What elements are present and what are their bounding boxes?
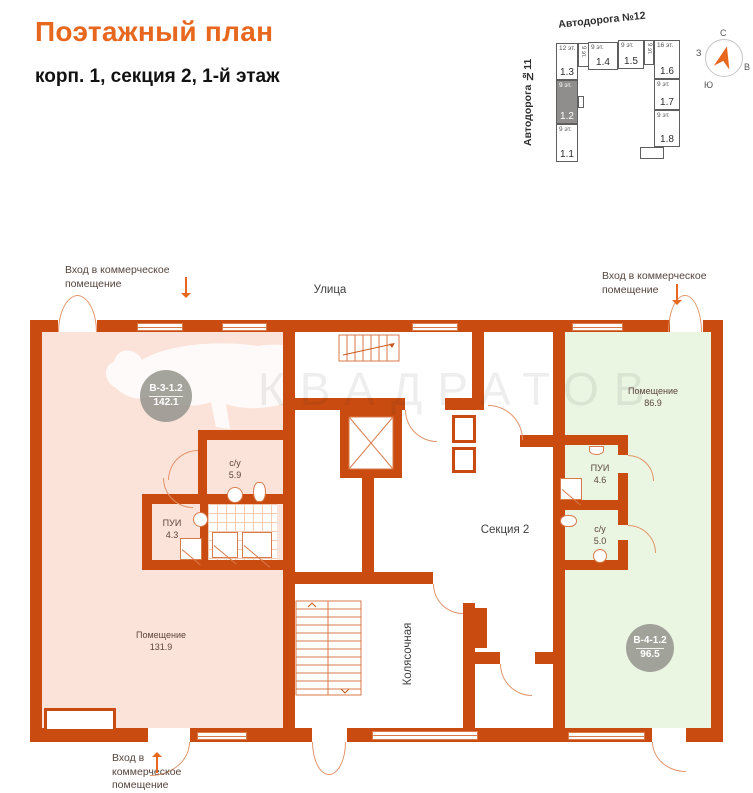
building-floors: 9 эт. [657,81,670,88]
building-floors: 9 эт. [621,42,634,49]
room-area: 131.9 [91,641,231,653]
building-floors: 9 эт. [591,44,604,51]
wall [553,560,628,570]
door-opening [312,728,347,742]
door-arc [652,742,686,772]
room-label-right-pui: ПУИ 4.6 [570,462,630,486]
compass-east-label: В [744,62,750,72]
minimap-building-1-6[interactable]: 16 эт. 1.6 [654,40,680,79]
building-floors: 9 эт. [657,112,670,119]
door-opening [652,728,686,742]
window [572,323,623,331]
wall [553,435,628,445]
entrance-label-top-left: Вход в коммерческое помещение [65,264,190,291]
compass: С З В Ю [696,26,752,98]
room-area: 86.9 [583,397,723,409]
room-name: ПУИ [142,517,202,529]
street-label: Улица [300,284,360,296]
utility-sink-icon [212,532,238,558]
entrance-arrow-icon [672,284,682,310]
wall [367,572,433,584]
toilet-icon [253,482,266,502]
building-floors: 9 эт. [580,46,586,58]
door-opening [148,728,190,742]
door-arc [312,742,329,775]
elevator-icon [348,416,394,470]
building-id: 1.4 [589,57,617,68]
wall [535,652,553,664]
room-label-right-commercial: Помещение 86.9 [583,385,723,409]
building-id: 1.7 [655,97,679,108]
building-floors: 16 эт. [657,42,673,49]
minimap-building-1-3[interactable]: 12 эт. 1.3 [556,43,578,80]
arrow-head [181,293,191,303]
room-name: ПУИ [570,462,630,474]
wall [283,332,295,728]
wall [475,608,487,648]
room-area: 5.0 [570,535,630,547]
room-label-left-pui: ПУИ 4.3 [142,517,202,541]
unit-code: В-3-1.2 [149,383,182,396]
wall [553,500,628,510]
minimap-building-1-5[interactable]: 9 эт. 1.5 [618,40,644,69]
wall [711,320,723,742]
wall [553,332,565,728]
unit-code: В-4-1.2 [633,635,666,648]
building-id: 1.8 [655,134,679,145]
main-staircase-icon [295,600,362,696]
window [222,323,267,331]
compass-west-label: З [696,48,701,58]
minimap-building-annex-top[interactable]: 9 эт. [578,43,589,67]
door-arc [433,584,463,614]
unit-area: 96.5 [636,648,663,662]
window [137,323,183,331]
minimap-building-1-8[interactable]: 9 эт. 1.8 [654,110,680,147]
window [568,732,645,740]
wall [293,572,367,584]
building-floors: 12 эт. [559,45,575,52]
road-label-12: Автодорога №12 [558,5,689,31]
compass-north-label: С [720,28,727,38]
room-area: 4.3 [142,529,202,541]
section-label: Секция 2 [460,524,550,536]
room-name: Помещение [91,629,231,641]
entrance-label-top-right: Вход в коммерческое помещение [602,270,727,297]
sink-icon [593,549,607,563]
entrance-arrow-icon [152,747,162,773]
entrance-arrow-icon [181,277,191,303]
door-arc [488,405,523,440]
sink-icon [589,446,604,455]
stroller-room-label: Колясочная [402,579,414,729]
unit-area: 142.1 [149,396,182,410]
entrance-stairs-icon [338,334,400,362]
compass-arrow-icon [709,43,739,73]
building-floors: 9 эт. [646,43,652,55]
minimap-structure [640,147,664,159]
room-label-left-commercial: Помещение 131.9 [91,629,231,653]
window [372,731,478,740]
door-arc [405,410,437,442]
arrow-stem [156,755,158,773]
door-arc [685,295,702,332]
door-arc [500,664,532,696]
wall [142,494,290,504]
room-name: Помещение [583,385,723,397]
building-id: 1.1 [557,149,577,160]
building-id: 1.5 [619,56,643,67]
utility-sink-icon [180,538,202,560]
unit-badge-right[interactable]: В-4-1.2 96.5 [626,624,674,672]
minimap-structure [578,96,584,108]
minimap-building-annex-mid[interactable]: 9 эт. [644,40,654,65]
polygon-shape [714,44,735,69]
room-name: с/у [570,523,630,535]
floor-plan-page: { "header": { "title": "Поэтажный план",… [0,0,753,781]
wall [475,652,500,664]
building-floors: 9 эт. [559,82,572,89]
window [197,732,247,740]
wall [198,430,283,440]
minimap-building-1-7[interactable]: 9 эт. 1.7 [654,79,680,110]
page-subtitle: корп. 1, секция 2, 1-й этаж [35,66,280,88]
building-id: 1.6 [655,66,679,77]
wall [520,435,553,447]
door-arc [77,295,97,332]
page-title: Поэтажный план [35,16,273,48]
site-minimap: Автодорога №12 Автодорога №11 9 эт. 1.1 … [520,8,720,166]
room-name: с/у [205,457,265,469]
path-shape [322,363,335,377]
wall [463,603,475,728]
wall [445,398,484,410]
door-arc [58,295,78,332]
wall [30,320,42,742]
minimap-building-1-2-highlighted[interactable]: 9 эт. 1.2 [556,80,578,124]
arrow-head [672,300,682,310]
room-area: 5.9 [205,469,265,481]
building-id: 1.3 [557,67,577,78]
utility-sink-icon [242,532,272,558]
wall [362,478,374,572]
rect-shape [339,335,399,361]
floor-plan: КВАДРАТОВ Помещение 131.9 Помещение 86.9… [30,318,723,781]
room-label-right-wc: с/у 5.0 [570,523,630,547]
minimap-building-1-1[interactable]: 9 эт. 1.1 [556,124,578,162]
unit-badge-left[interactable]: В-3-1.2 142.1 [140,370,192,422]
building-floors: 9 эт. [559,126,572,133]
room-area: 4.6 [570,474,630,486]
compass-south-label: Ю [704,80,713,90]
service-shaft [452,415,476,443]
service-shaft [452,447,476,473]
arrow-head [152,747,162,757]
minimap-building-1-4[interactable]: 9 эт. 1.4 [588,42,618,70]
wall [618,435,628,455]
road-label-11: Автодорога №11 [522,42,534,162]
room-label-left-wc: с/у 5.9 [205,457,265,481]
window [412,323,458,331]
building-id: 1.2 [557,111,577,122]
sink-icon [227,487,243,503]
door-arc [329,742,346,775]
entrance-porch [44,708,116,732]
